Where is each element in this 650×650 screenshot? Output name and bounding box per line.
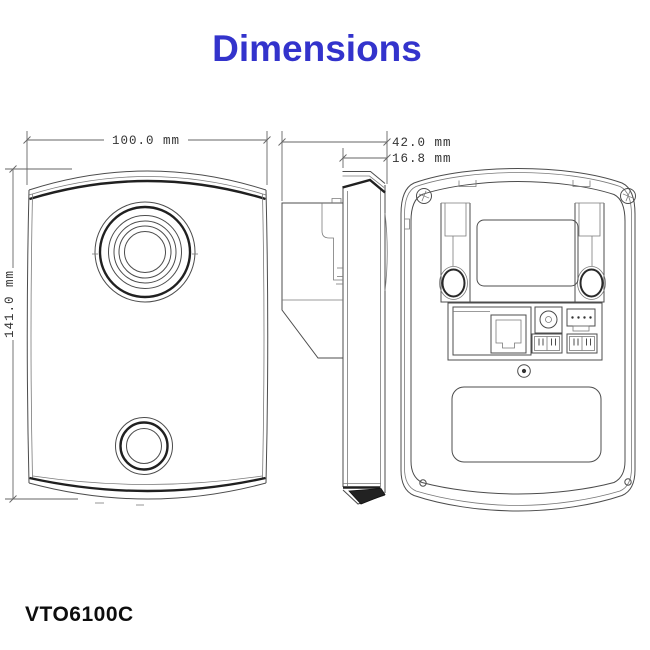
- background: [0, 0, 650, 650]
- height-dimension-label: 141.0 mm: [3, 270, 17, 338]
- depth-dimension-label: 42.0 mm: [392, 136, 452, 150]
- page-title: Dimensions: [212, 28, 422, 69]
- technical-drawing: Dimensions: [0, 0, 650, 650]
- width-dimension-label: 100.0 mm: [112, 134, 180, 148]
- model-label: VTO6100C: [25, 603, 134, 626]
- panel-depth-dimension-label: 16.8 mm: [392, 152, 452, 166]
- dimensions-diagram-page: Dimensions: [0, 0, 650, 650]
